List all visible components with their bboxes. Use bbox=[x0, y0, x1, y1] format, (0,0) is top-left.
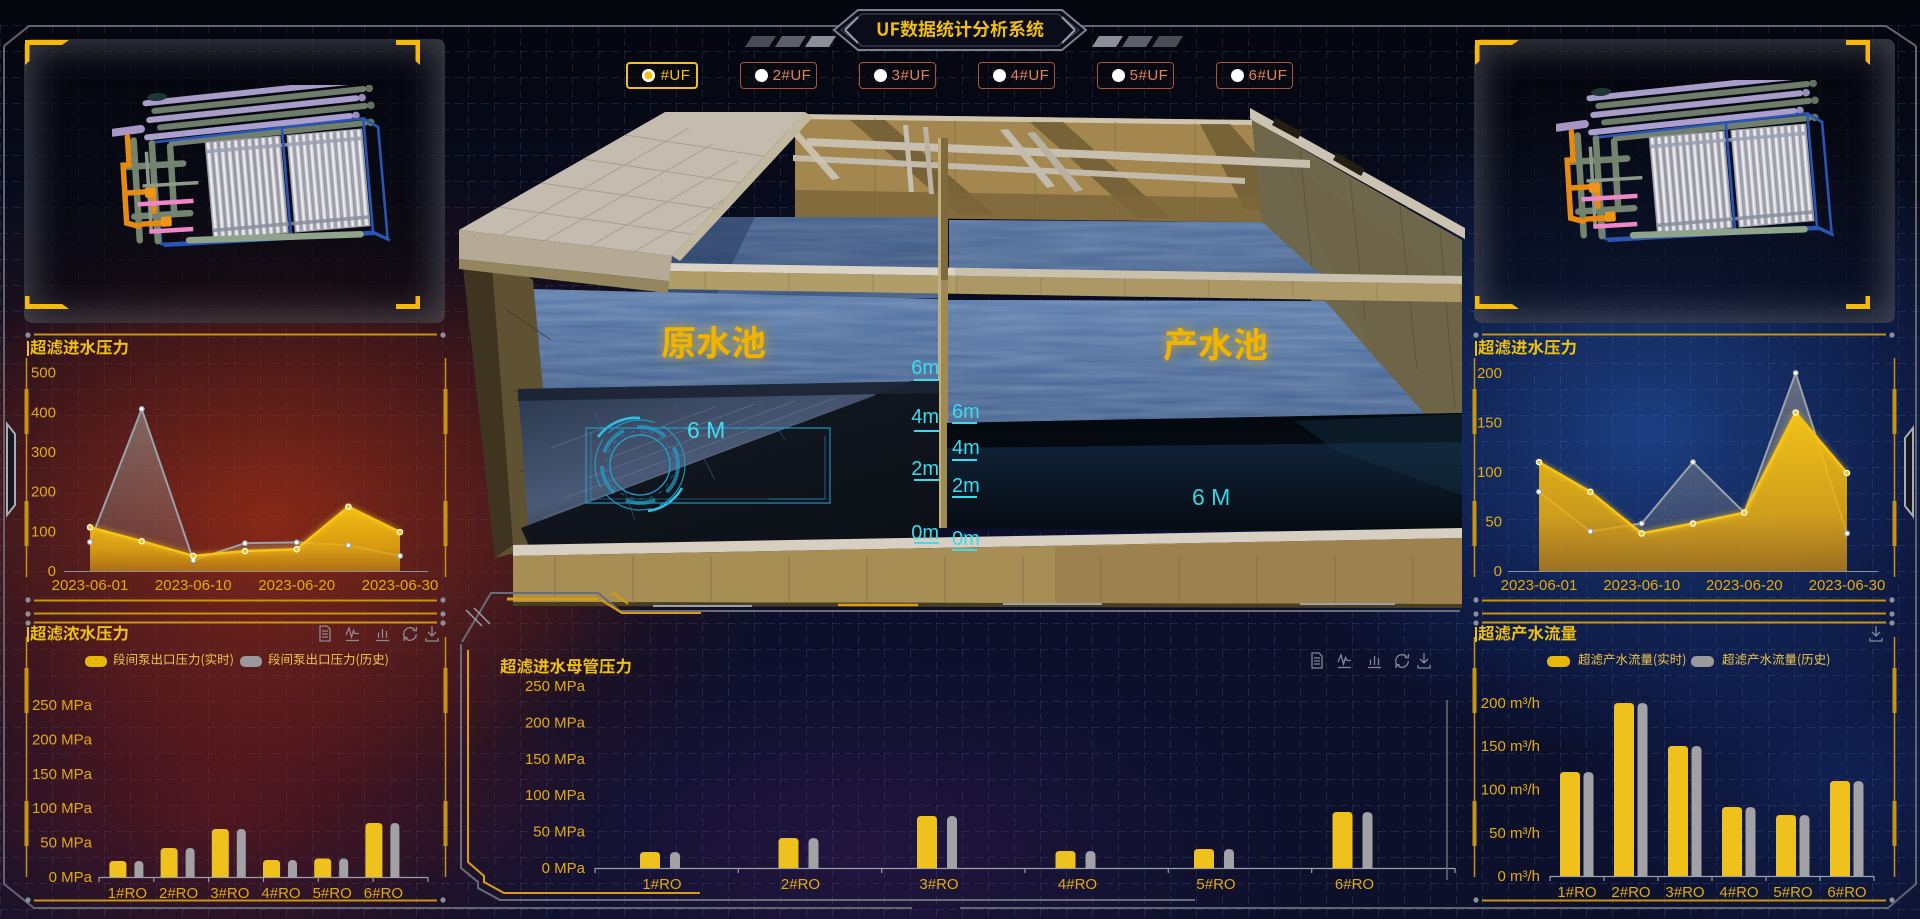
svg-text:3#RO: 3#RO bbox=[919, 876, 958, 893]
svg-text:6#RO: 6#RO bbox=[1827, 884, 1866, 901]
svg-text:400: 400 bbox=[31, 404, 56, 421]
svg-text:50 MPa: 50 MPa bbox=[533, 824, 585, 841]
svg-text:2023-06-20: 2023-06-20 bbox=[1706, 577, 1783, 594]
svg-text:2023-06-30: 2023-06-30 bbox=[1809, 577, 1886, 594]
svg-text:2023-06-10: 2023-06-10 bbox=[155, 577, 232, 594]
svg-text:1#RO: 1#RO bbox=[108, 885, 147, 902]
svg-text:1#RO: 1#RO bbox=[642, 876, 681, 893]
svg-text:50 MPa: 50 MPa bbox=[40, 835, 92, 852]
svg-text:150 m³/h: 150 m³/h bbox=[1481, 738, 1540, 755]
svg-text:3#RO: 3#RO bbox=[210, 885, 249, 902]
svg-text:6#RO: 6#RO bbox=[364, 885, 403, 902]
svg-text:5#RO: 5#RO bbox=[1773, 884, 1812, 901]
svg-text:150 MPa: 150 MPa bbox=[525, 751, 586, 768]
svg-text:100 m³/h: 100 m³/h bbox=[1481, 782, 1540, 799]
svg-text:100 MPa: 100 MPa bbox=[525, 787, 586, 804]
svg-text:2023-06-20: 2023-06-20 bbox=[258, 577, 335, 594]
svg-text:150: 150 bbox=[1477, 415, 1502, 432]
svg-text:3#RO: 3#RO bbox=[1665, 884, 1704, 901]
svg-text:5#RO: 5#RO bbox=[313, 885, 352, 902]
svg-text:6#RO: 6#RO bbox=[1335, 876, 1374, 893]
svg-text:200: 200 bbox=[1477, 365, 1502, 382]
svg-text:50: 50 bbox=[1485, 514, 1502, 531]
svg-text:150 MPa: 150 MPa bbox=[32, 766, 93, 783]
svg-text:300: 300 bbox=[31, 444, 56, 461]
svg-text:200 MPa: 200 MPa bbox=[525, 714, 586, 731]
svg-text:2023-06-01: 2023-06-01 bbox=[1501, 577, 1578, 594]
svg-text:100 MPa: 100 MPa bbox=[32, 800, 93, 817]
svg-text:0 MPa: 0 MPa bbox=[542, 860, 586, 877]
svg-text:250 MPa: 250 MPa bbox=[32, 697, 93, 714]
svg-text:2023-06-30: 2023-06-30 bbox=[362, 577, 439, 594]
svg-text:2#RO: 2#RO bbox=[159, 885, 198, 902]
svg-text:0 m³/h: 0 m³/h bbox=[1497, 868, 1540, 885]
svg-text:0 MPa: 0 MPa bbox=[49, 869, 93, 886]
svg-text:2#RO: 2#RO bbox=[1611, 884, 1650, 901]
svg-text:200 MPa: 200 MPa bbox=[32, 731, 93, 748]
svg-text:2023-06-10: 2023-06-10 bbox=[1603, 577, 1680, 594]
svg-text:500: 500 bbox=[31, 365, 56, 382]
svg-text:100: 100 bbox=[1477, 464, 1502, 481]
svg-text:250 MPa: 250 MPa bbox=[525, 678, 586, 695]
svg-text:5#RO: 5#RO bbox=[1196, 876, 1235, 893]
svg-text:100: 100 bbox=[31, 523, 56, 540]
svg-text:4#RO: 4#RO bbox=[261, 885, 300, 902]
svg-text:2#RO: 2#RO bbox=[781, 876, 820, 893]
svg-text:50 m³/h: 50 m³/h bbox=[1489, 825, 1540, 842]
svg-text:200: 200 bbox=[31, 484, 56, 501]
svg-text:1#RO: 1#RO bbox=[1557, 884, 1596, 901]
svg-text:2023-06-01: 2023-06-01 bbox=[52, 577, 129, 594]
svg-text:4#RO: 4#RO bbox=[1719, 884, 1758, 901]
svg-text:200 m³/h: 200 m³/h bbox=[1481, 695, 1540, 712]
svg-text:4#RO: 4#RO bbox=[1058, 876, 1097, 893]
